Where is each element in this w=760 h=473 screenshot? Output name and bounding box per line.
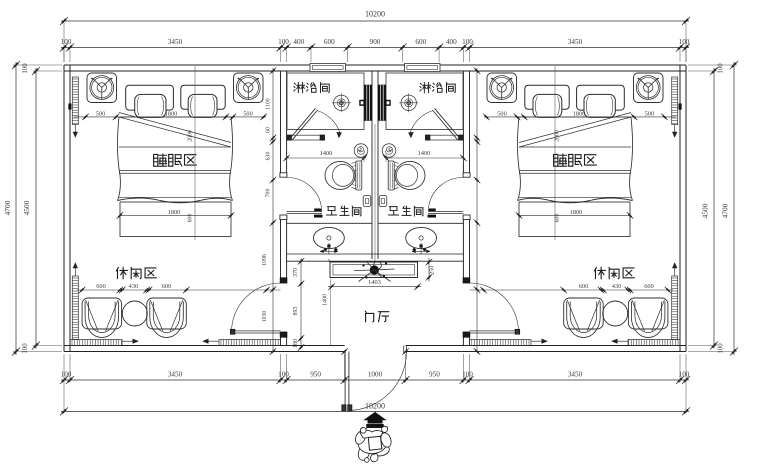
svg-text:2000: 2000 bbox=[188, 130, 194, 142]
svg-text:100: 100 bbox=[718, 63, 725, 74]
svg-text:2000: 2000 bbox=[555, 130, 561, 142]
svg-text:1800: 1800 bbox=[168, 209, 181, 216]
svg-text:893: 893 bbox=[293, 307, 299, 316]
svg-text:3450: 3450 bbox=[168, 371, 183, 379]
svg-text:100: 100 bbox=[462, 38, 473, 46]
svg-text:1400: 1400 bbox=[323, 294, 329, 306]
svg-text:600: 600 bbox=[188, 214, 194, 223]
svg-text:3450: 3450 bbox=[168, 38, 183, 46]
svg-text:600: 600 bbox=[555, 214, 561, 223]
svg-text:1800: 1800 bbox=[165, 110, 178, 117]
svg-text:630: 630 bbox=[266, 152, 272, 161]
svg-text:3450: 3450 bbox=[568, 371, 583, 379]
svg-text:950: 950 bbox=[429, 371, 440, 379]
svg-text:900: 900 bbox=[370, 38, 381, 46]
svg-text:100: 100 bbox=[61, 38, 72, 46]
svg-text:1400: 1400 bbox=[320, 150, 333, 157]
svg-text:430: 430 bbox=[129, 283, 138, 290]
svg-text:3450: 3450 bbox=[568, 38, 583, 46]
svg-text:10200: 10200 bbox=[365, 10, 385, 19]
svg-text:100: 100 bbox=[278, 38, 289, 46]
svg-text:10200: 10200 bbox=[365, 401, 385, 410]
svg-text:950: 950 bbox=[310, 371, 321, 379]
svg-text:600: 600 bbox=[579, 283, 588, 290]
svg-text:1800: 1800 bbox=[570, 209, 583, 216]
svg-text:100: 100 bbox=[462, 371, 473, 379]
svg-text:500: 500 bbox=[645, 110, 654, 117]
svg-text:250: 250 bbox=[430, 266, 436, 275]
svg-text:600: 600 bbox=[644, 283, 653, 290]
svg-text:500: 500 bbox=[243, 110, 252, 117]
svg-text:600: 600 bbox=[162, 283, 171, 290]
svg-text:4700: 4700 bbox=[3, 200, 12, 215]
svg-text:4700: 4700 bbox=[721, 203, 730, 218]
svg-text:1800: 1800 bbox=[573, 110, 586, 117]
svg-text:1030: 1030 bbox=[262, 311, 268, 323]
svg-text:100: 100 bbox=[679, 371, 690, 379]
svg-text:430: 430 bbox=[612, 283, 621, 290]
svg-text:100: 100 bbox=[718, 343, 725, 354]
svg-text:4500: 4500 bbox=[701, 203, 710, 218]
svg-text:1096: 1096 bbox=[262, 254, 268, 266]
svg-text:4500: 4500 bbox=[22, 200, 31, 215]
svg-text:370: 370 bbox=[293, 268, 299, 277]
svg-text:1000: 1000 bbox=[368, 371, 383, 379]
svg-text:700: 700 bbox=[266, 189, 272, 198]
svg-text:400: 400 bbox=[293, 38, 304, 46]
svg-text:400: 400 bbox=[446, 38, 457, 46]
svg-text:100: 100 bbox=[61, 371, 72, 379]
svg-text:180: 180 bbox=[293, 339, 299, 348]
svg-text:500: 500 bbox=[96, 110, 105, 117]
svg-text:600: 600 bbox=[324, 38, 335, 46]
svg-text:1100: 1100 bbox=[266, 98, 272, 109]
svg-text:100: 100 bbox=[22, 343, 29, 354]
svg-text:600: 600 bbox=[96, 283, 105, 290]
svg-text:100: 100 bbox=[679, 38, 690, 46]
svg-text:1400: 1400 bbox=[418, 150, 431, 157]
svg-text:60: 60 bbox=[266, 127, 272, 133]
svg-text:1403: 1403 bbox=[368, 279, 381, 286]
svg-text:500: 500 bbox=[497, 110, 506, 117]
svg-text:100: 100 bbox=[278, 371, 289, 379]
svg-text:600: 600 bbox=[415, 38, 426, 46]
svg-text:100: 100 bbox=[22, 63, 29, 74]
